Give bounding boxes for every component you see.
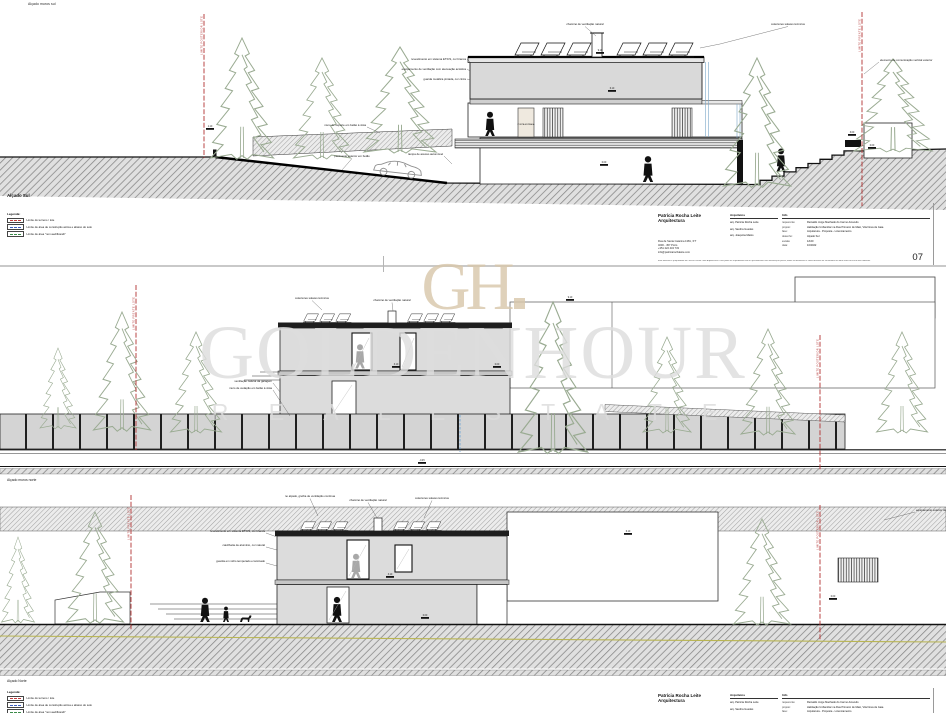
svg-text:revestimento em sistema ETICS,: revestimento em sistema ETICS, cor branc… <box>411 57 466 61</box>
firm-name: Patrícia Rocha Leite Arquitectura <box>658 693 701 704</box>
svg-text:6.10: 6.10 <box>610 88 615 90</box>
street-lines <box>0 450 946 474</box>
dashed-line-swatch <box>7 702 24 708</box>
dashed-line-swatch <box>7 218 24 224</box>
info-column: Info requerente:Reinaldo Jorge Machado d… <box>782 213 930 249</box>
legend-item: Limite de área "non aedificandi" <box>7 709 92 713</box>
svg-text:colectores solares térmicos: colectores solares térmicos <box>771 22 805 26</box>
house-north-walls <box>244 311 512 415</box>
dashed-line-swatch <box>7 709 24 713</box>
legend-title: Legenda: <box>7 690 92 694</box>
caption-alcado-muros-norte: Alçado muros norte <box>7 478 36 482</box>
caption-alcado-sul: Alçado Sul <box>7 193 30 198</box>
architects-column: Arquitetos arq. Patrícia Rocha Leite arq… <box>730 213 778 241</box>
svg-text:LIMITE POSTERIOR LOTE: LIMITE POSTERIOR LOTE <box>200 16 204 55</box>
svg-text:pavimento exterior em betão: pavimento exterior em betão <box>334 154 370 158</box>
svg-text:chaminé de ventilação natural: chaminé de ventilação natural <box>566 22 604 26</box>
svg-text:guarda em vidro temperado e la: guarda em vidro temperado e laminado <box>216 559 265 563</box>
svg-text:3.00: 3.00 <box>850 132 855 134</box>
svg-text:0.00: 0.00 <box>495 364 500 366</box>
legend: Legenda: Limite do terreno / lote Limite… <box>7 212 92 238</box>
solar-panels-right <box>616 43 694 57</box>
svg-text:equipamento de ventilação com: equipamento de ventilação com atenuação … <box>402 67 467 71</box>
svg-text:PORTA ENTRADA: PORTA ENTRADA <box>518 123 535 126</box>
svg-text:0.00: 0.00 <box>423 615 428 617</box>
firm-name: Patrícia Rocha Leite Arquitectura <box>658 213 701 224</box>
north-elevation-drawing: LIMITE FRENTE LOTE LIMITE POSTERIOR LOTE… <box>0 485 946 687</box>
svg-text:ventilação natural da garagem: ventilação natural da garagem <box>234 379 272 383</box>
svg-text:-0.45: -0.45 <box>419 460 425 462</box>
architectural-drawing-page: LIMITE POSTERIOR LOTE LIMITE FRENTE LOTE… <box>0 0 946 713</box>
svg-text:caixilharia de alumínio, cor n: caixilharia de alumínio, cor natural <box>223 543 266 547</box>
svg-text:9.10: 9.10 <box>568 297 573 299</box>
svg-text:6.10: 6.10 <box>626 531 631 533</box>
house-north-elevation <box>275 518 509 625</box>
svg-text:LIMITE FRENTE LOTE: LIMITE FRENTE LOTE <box>858 19 862 52</box>
legend-item: Limite de área de construção acima e aba… <box>7 224 92 230</box>
svg-text:3.10: 3.10 <box>394 364 399 366</box>
svg-text:elemento de comunicação vertic: elemento de comunicação vertical exterio… <box>880 58 932 62</box>
south-elevation-drawing: LIMITE POSTERIOR LOTE LIMITE FRENTE LOTE… <box>0 0 946 212</box>
neighbor-volume <box>507 512 718 601</box>
house-south-elevation <box>455 33 743 184</box>
ventilation-grille <box>838 558 878 582</box>
svg-text:colectores solares térmicos: colectores solares térmicos <box>415 496 449 500</box>
svg-text:colectores solares térmicos: colectores solares térmicos <box>295 296 329 300</box>
north-walls-elevation-drawing: LIMITE FRENTE LOTE LIMITE POSTERIOR LOTE… <box>0 265 946 507</box>
legend-title: Legenda: <box>7 212 92 216</box>
info-column: Info requerente:Reinaldo Jorge Machado d… <box>782 693 930 713</box>
svg-text:no alçado, grelha de ventilaçã: no alçado, grelha de ventilação contínua <box>285 494 336 498</box>
title-block: Patrícia Rocha Leite Arquitectura Rua de… <box>652 209 933 265</box>
svg-text:guarda metálica pintada, cor c: guarda metálica pintada, cor cinza <box>423 77 466 81</box>
person-silhouette <box>200 598 210 622</box>
legend-item: Limite de área "non aedificandi" <box>7 231 92 237</box>
svg-text:0.00: 0.00 <box>831 596 836 598</box>
svg-text:equipamento exterior de climat: equipamento exterior de climatização <box>916 508 946 512</box>
lot-boundary-rear: LIMITE POSTERIOR LOTE <box>816 505 821 640</box>
legend-item: Limite do terreno / lote <box>7 696 92 702</box>
legend: Legenda: Limite do terreno / lote Limite… <box>7 690 92 713</box>
lot-boundary-rear: LIMITE POSTERIOR LOTE <box>200 14 205 158</box>
architects-column: Arquitetos arq. Patrícia Rocha Leite arq… <box>730 693 778 713</box>
svg-text:LIMITE FRENTE LOTE: LIMITE FRENTE LOTE <box>127 507 131 540</box>
dashed-line-swatch <box>7 224 24 230</box>
firm-address: Rua de Santa Catarina 1381, 3ºT 4000 - 4… <box>658 240 696 254</box>
dashed-line-swatch <box>7 696 24 702</box>
svg-text:9.10: 9.10 <box>598 50 603 52</box>
sheet-edge-line <box>933 688 934 713</box>
neighbor-volume <box>510 302 935 388</box>
sheet-edge-line <box>933 203 934 265</box>
terrain-north <box>0 625 946 676</box>
svg-text:muro de suporte em betão à vis: muro de suporte em betão à vista <box>324 123 366 127</box>
svg-text:rampa de acesso automóvel: rampa de acesso automóvel <box>408 152 444 156</box>
dashed-line-swatch <box>7 231 24 237</box>
dog-silhouette <box>240 615 252 622</box>
solar-panels-left <box>514 43 592 57</box>
disclaimer-text: Este desenho é propriedade de Patrícia R… <box>658 260 930 262</box>
svg-text:0.00: 0.00 <box>602 162 607 164</box>
svg-text:LIMITE POSTERIOR LOTE: LIMITE POSTERIOR LOTE <box>816 339 820 378</box>
title-block: Patrícia Rocha Leite Arquitectura Arquit… <box>652 689 933 713</box>
caption-alcado-norte: Alçado Norte <box>7 679 27 683</box>
legend-item: Limite de área de construção acima e aba… <box>7 702 92 708</box>
svg-text:chaminé de ventilação natural: chaminé de ventilação natural <box>349 498 387 502</box>
svg-text:LIMITE POSTERIOR LOTE: LIMITE POSTERIOR LOTE <box>816 511 820 550</box>
svg-text:1.10: 1.10 <box>208 126 213 128</box>
legend-item: Limite do terreno / lote <box>7 218 92 224</box>
svg-text:revestimento em sistema ETICS,: revestimento em sistema ETICS, cor branc… <box>210 529 265 533</box>
svg-text:LIMITE FRENTE LOTE: LIMITE FRENTE LOTE <box>132 297 136 330</box>
svg-text:muro de vedação em betão à vis: muro de vedação em betão à vista <box>229 386 272 390</box>
svg-text:chaminé de ventilação natural: chaminé de ventilação natural <box>373 298 411 302</box>
rear-retaining-wall <box>0 507 946 531</box>
svg-text:3.10: 3.10 <box>388 574 393 576</box>
svg-text:0.00: 0.00 <box>870 145 875 147</box>
drawing-label-top: Alçado muros sul <box>28 2 56 6</box>
